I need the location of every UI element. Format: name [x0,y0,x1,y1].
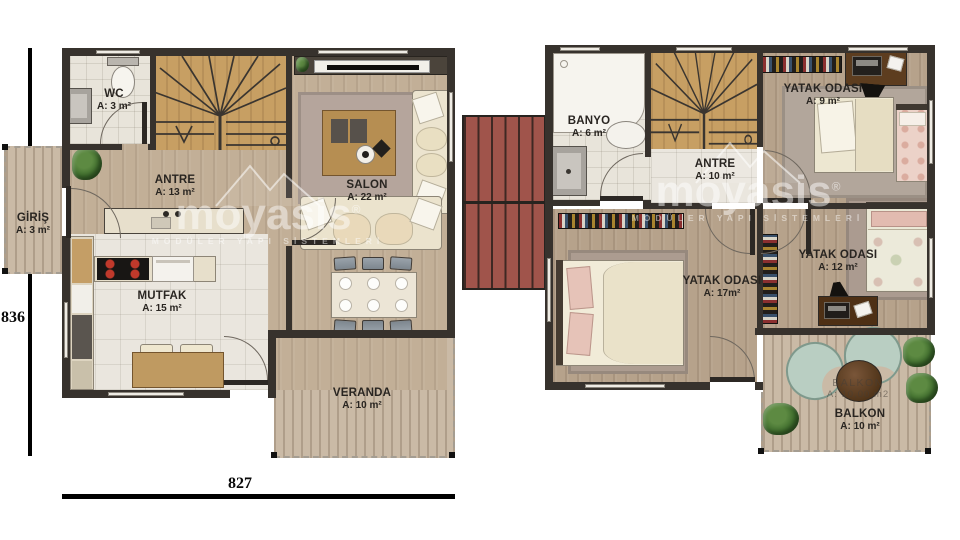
room-area: A: 10 m² [333,400,391,411]
kitchen-island-icon [104,208,244,234]
window [929,238,933,298]
table-books [331,119,348,143]
room-label-veranda: VERANDA A: 10 m² [333,387,391,411]
room-label-yatak9: YATAK ODASI A: 9 m² [784,83,863,107]
room-area: A: 13 m² [155,187,196,198]
stove-icon [97,258,149,280]
wall-segment [755,328,935,335]
room-area: A: 12 m² [799,262,878,273]
tv-unit-icon [294,56,452,75]
room-area: A: 6 m² [568,128,611,139]
room-label-antre: ANTRE A: 13 m² [155,174,196,198]
width-dimension-label: 827 [200,475,280,493]
desk-icon [845,50,907,86]
wall-segment [757,45,763,147]
tv-screen [314,60,430,73]
room-area: A: 15 m² [137,303,186,314]
bed-headboard [556,260,563,365]
coffee-table-icon [322,110,396,176]
bedroom17-door-leaf [750,209,755,255]
floor-plan-sheet: 836 827 [0,0,960,540]
height-dimension-label: 836 [1,309,27,327]
plate [367,299,380,312]
stairs-icon [651,51,757,149]
room-area: A: 10,00 m2 [827,390,889,401]
sofa-pillow [409,197,442,230]
room-area: A: 17m² [683,288,762,299]
room-label-wc: WC A: 3 m² [97,88,131,112]
oven-icon [72,315,92,359]
sofa-pillow [412,92,445,125]
entrance-porch [4,146,62,274]
wall-segment [643,203,712,209]
bed-pillow [871,211,927,227]
wall-segment [62,48,70,188]
wall-segment [286,160,292,198]
bed-pillow [817,101,857,154]
room-name: VERANDA [333,387,391,400]
room-label-balkon: BALKON A: 10 m² [835,408,885,432]
desk-icon [818,296,878,326]
veranda-corner-marker [449,452,455,458]
wall-segment [645,45,651,157]
sofa-cushion [333,213,371,245]
bed-pillow [899,112,926,126]
balcony-corner-marker [758,448,764,454]
room-label-antre-upper: ANTRE A: 10 m² [695,158,736,182]
paper-icon [887,55,905,71]
wc-door-leaf [142,102,147,144]
wall-segment [286,48,292,160]
roof-ridge-line [464,201,544,204]
sofa-cushion [416,127,447,151]
plate [339,299,352,312]
window [108,392,184,396]
window [560,47,600,51]
room-name: ANTRE [155,174,196,187]
room-name: MUTFAK [137,290,186,303]
shower-drain [560,60,568,68]
room-label-yatak17: YATAK ODASI A: 17m² [683,275,762,299]
toilet-icon [107,57,139,66]
window [318,50,408,54]
island-sink [151,217,171,229]
dishwasher-icon [152,256,194,282]
room-area: A: 3 m² [16,225,50,236]
bed-blanket [855,99,893,171]
room-area: A: 10 m² [695,171,736,182]
kitchen-cabinet-column [70,236,94,390]
bed-blanket [603,262,683,364]
sink-icon [551,146,587,196]
room-name: BANYO [568,115,611,128]
wall-segment [268,330,276,398]
sink-basin [71,94,87,118]
porch-corner-marker [2,268,8,274]
cabinet-lower [72,361,92,389]
room-name: BALKON [835,408,885,421]
wall-segment [545,200,600,206]
plate [395,299,408,312]
room-area: A: 10 m² [835,421,885,432]
window [585,384,665,388]
room-name: GİRİŞ [16,212,50,225]
room-label-mutfak: MUTFAK A: 15 m² [137,290,186,314]
room-label-giris: GİRİŞ A: 3 m² [16,212,50,236]
room-label-banyo: BANYO A: 6 m² [568,115,611,139]
balcony-corner-marker [925,448,931,454]
wall-segment [545,45,553,390]
wall-segment [808,203,935,209]
bathroom-door-leaf [600,196,643,201]
roof-section [462,115,546,290]
double-bed-icon [556,260,684,366]
dining-chair-icon [390,256,413,271]
window [929,100,933,164]
entrance-door-leaf [66,186,71,238]
room-label-yatak12: YATAK ODASI A: 12 m² [799,249,878,273]
veranda-door-leaf [224,380,268,385]
paper-icon [853,301,872,318]
room-area: A: 3 m² [97,101,131,112]
bedroom9-door-leaf [763,198,811,203]
window [64,302,68,358]
wall-segment [62,144,122,150]
plate [339,277,352,290]
upper-staircase-area [651,51,757,149]
wall-segment [150,48,156,150]
dining-chair-icon [334,256,357,271]
room-name: YATAK ODASI [799,249,878,262]
plate [395,277,408,290]
room-area: A: 22 m² [346,192,387,203]
veranda-corner-marker [271,452,277,458]
bookshelf-icon [762,56,842,73]
laptop-icon [824,302,850,319]
stairs-icon [154,56,286,150]
dining-chair-icon [362,257,384,270]
bed-icon [866,202,932,292]
toilet-icon [606,121,646,149]
horizontal-dimension-line [62,494,455,499]
window [848,47,908,51]
window [547,258,551,322]
cabinet-white [72,285,92,313]
window [449,92,453,162]
room-label-balkon-alt: BALKON A: 10,00 m2 [827,378,889,400]
bedroom12-door-leaf [806,209,811,254]
room-name: SALON [346,179,387,192]
cabinet-wood [72,239,92,283]
room-name: YATAK ODASI [683,275,762,288]
wardrobe-icon [558,213,684,229]
bench-table-icon [132,352,224,388]
window [96,50,140,54]
plant-icon [906,373,938,403]
faucet [175,211,181,217]
room-name: YATAK ODASI [784,83,863,96]
table-decor [372,139,390,157]
room-name: WC [97,88,131,101]
bed-icon [896,104,930,182]
balcony-door-leaf [710,377,755,382]
sofa-cushion [416,153,447,177]
laptop-icon [852,56,882,76]
bed-pillow [566,312,594,356]
window [676,47,732,51]
table-books [350,119,367,143]
room-name: ANTRE [695,158,736,171]
bed-headboard [896,104,929,110]
wall-segment [274,330,455,338]
room-name: BALKON [827,378,889,390]
wall-segment [755,382,763,390]
staircase-area [154,56,286,150]
wall-segment [286,246,292,336]
salon-door-leaf [292,240,336,245]
room-label-salon: SALON A: 22 m² [346,179,387,203]
dining-table-icon [331,272,417,318]
sofa-cushion [375,213,413,245]
porch-corner-marker [2,144,8,150]
plate [367,277,380,290]
bed-icon [814,97,894,173]
bed-pillow [566,266,594,310]
room-area: A: 9 m² [784,96,863,107]
